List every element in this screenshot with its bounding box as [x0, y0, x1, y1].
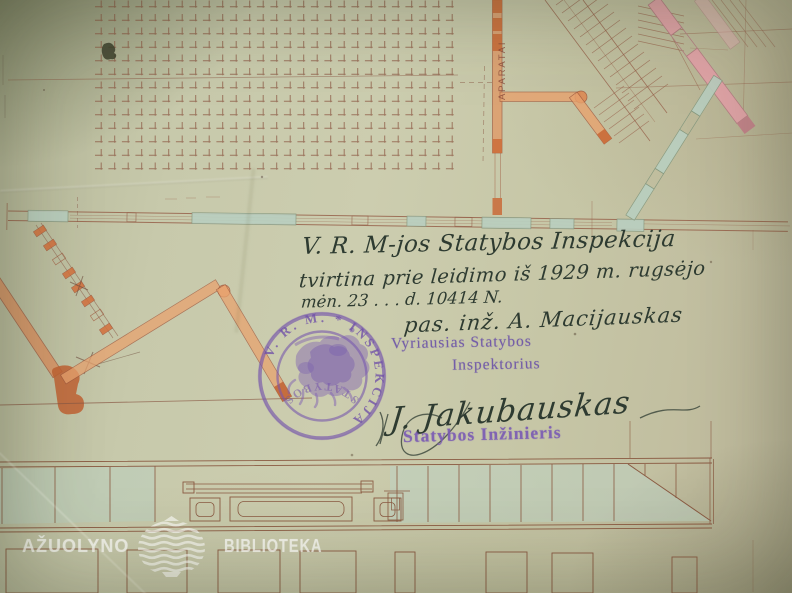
facade-elevation [0, 421, 753, 593]
pink-walls [648, 0, 755, 134]
chief-inspector-stamp-line-1: Vyriausias Statybos [391, 333, 532, 353]
watermark-azuolyno: AŽUOLYNO [22, 536, 129, 557]
library-logo-icon [134, 516, 206, 577]
document-photo: V. R. M. * INSPEKCIJA STATYBOS [0, 0, 792, 593]
engineer-stamp: Statybos Inžinieris [403, 422, 562, 447]
room-label-aparatai: APARATAI [497, 41, 508, 100]
watermark-biblioteka: BIBLIOTEKA [224, 536, 322, 557]
round-seal-stamp: V. R. M. * INSPEKCIJA STATYBOS [259, 310, 388, 440]
green-diagonal-wall [626, 75, 722, 220]
orange-vertical-wall [460, 0, 612, 215]
chief-inspector-stamp-line-2: Inspektorius [452, 355, 541, 375]
stair-plan [545, 0, 792, 250]
